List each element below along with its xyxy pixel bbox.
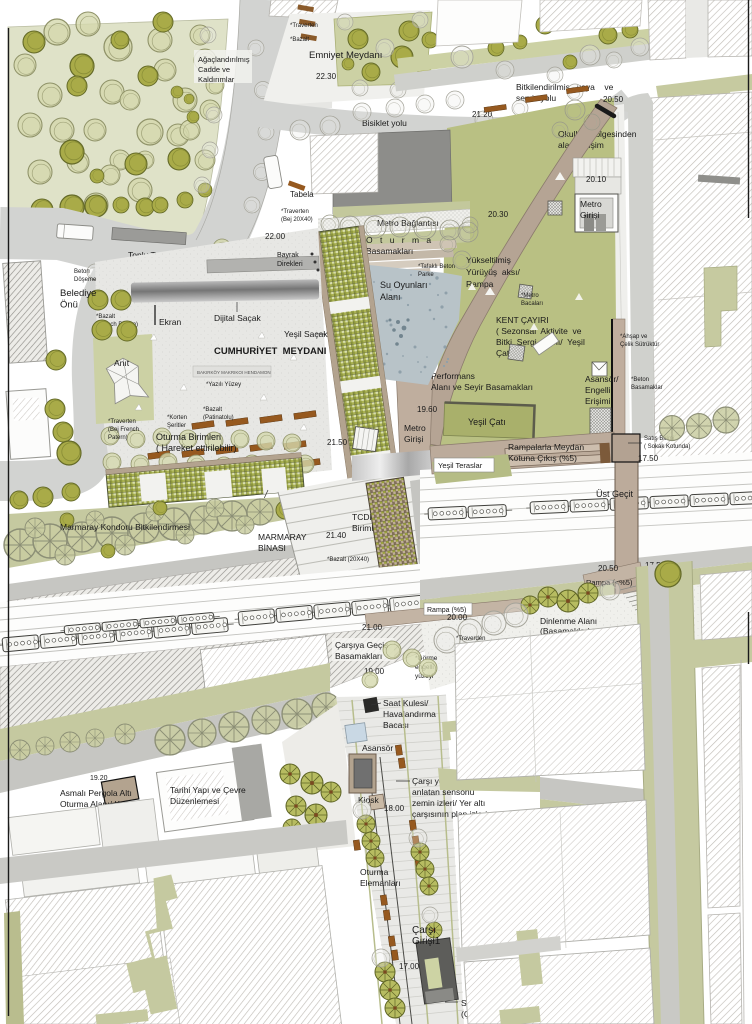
- svg-text:Üst Geçit: Üst Geçit: [596, 489, 634, 499]
- svg-text:Oturma: Oturma: [360, 867, 389, 877]
- svg-text:(Patinatolu): (Patinatolu): [203, 415, 234, 421]
- svg-text:20.50: 20.50: [598, 564, 619, 573]
- svg-text:*Bazalt: *Bazalt: [290, 37, 309, 43]
- svg-text:*Korten: *Korten: [167, 415, 187, 421]
- svg-text:Girişi1: Girişi1: [412, 936, 441, 947]
- svg-text:zemin izleri/ Yer altı: zemin izleri/ Yer altı: [412, 798, 485, 808]
- svg-text:Cadde ve: Cadde ve: [198, 65, 230, 74]
- svg-text:Dinlenme Alanı: Dinlenme Alanı: [540, 616, 597, 626]
- svg-text:Alanı ve Seyir Basamakları: Alanı ve Seyir Basamakları: [431, 382, 533, 392]
- svg-text:( Sezonsal Aktivite ve: ( Sezonsal Aktivite ve: [496, 326, 582, 336]
- svg-text:*Traverten: *Traverten: [108, 419, 136, 425]
- svg-text:Ekran: Ekran: [159, 317, 181, 327]
- svg-text:Havalandırma: Havalandırma: [383, 709, 436, 719]
- svg-text:(Bej French: (Bej French: [108, 427, 139, 433]
- svg-text:Şeritler: Şeritler: [167, 423, 186, 429]
- svg-text:Rampalarla Meydan: Rampalarla Meydan: [508, 442, 584, 452]
- svg-text:Performans: Performans: [431, 371, 475, 381]
- svg-text:20.30: 20.30: [488, 210, 509, 219]
- svg-text:KENT ÇAYIRI: KENT ÇAYIRI: [496, 315, 549, 325]
- svg-text:20.00: 20.00: [447, 613, 468, 622]
- svg-text:( Sokak Kotunda): ( Sokak Kotunda): [644, 444, 690, 450]
- svg-text:21.50: 21.50: [327, 438, 348, 447]
- svg-text:Düzenlemesi: Düzenlemesi: [170, 796, 219, 806]
- svg-text:22.00: 22.00: [265, 232, 286, 241]
- svg-text:Dijital Saçak: Dijital Saçak: [214, 313, 262, 323]
- svg-text:Çelik Sütrüktür: Çelik Sütrüktür: [620, 342, 659, 348]
- svg-text:Girişi: Girişi: [580, 210, 599, 220]
- svg-text:Erişimi: Erişimi: [585, 396, 611, 406]
- svg-text:*Traverten: *Traverten: [290, 23, 318, 29]
- svg-text:Emniyet Meydanı: Emniyet Meydanı: [309, 50, 382, 61]
- svg-text:MARMARAY: MARMARAY: [258, 532, 307, 542]
- svg-text:20.50: 20.50: [603, 95, 624, 104]
- svg-text:Metro: Metro: [404, 423, 426, 433]
- svg-text:*Traverten: *Traverten: [281, 209, 309, 215]
- svg-text:*Bazalt: *Bazalt: [203, 407, 222, 413]
- svg-text:Yeşil Çatı: Yeşil Çatı: [468, 417, 506, 427]
- svg-text:Asmalı Pergola Altı: Asmalı Pergola Altı: [60, 788, 132, 798]
- svg-text:Basamakları: Basamakları: [335, 651, 382, 661]
- svg-text:17.00: 17.00: [399, 962, 420, 971]
- svg-text:Asansör: Asansör: [362, 743, 393, 753]
- svg-text:BİNASI: BİNASI: [258, 543, 286, 553]
- svg-text:Önü: Önü: [60, 300, 78, 311]
- svg-text:Bayrak: Bayrak: [277, 252, 299, 259]
- svg-text:Bacaları: Bacaları: [521, 301, 543, 307]
- svg-text:Tarihi Yapı ve Çevre: Tarihi Yapı ve Çevre: [170, 785, 246, 795]
- svg-text:Metro: Metro: [580, 199, 602, 209]
- svg-text:Marmaray Kondoru Bitkilendirme: Marmaray Kondoru Bitkilendirmesi: [60, 522, 190, 532]
- svg-text:Kaldırımlar: Kaldırımlar: [198, 75, 235, 84]
- svg-text:22.30: 22.30: [316, 72, 337, 81]
- svg-text:O t u r m a: O t u r m a: [366, 235, 434, 245]
- svg-text:21.00: 21.00: [362, 623, 383, 632]
- svg-text:Tabela: Tabela: [290, 190, 314, 199]
- svg-text:*Beton: *Beton: [631, 377, 649, 383]
- svg-text:Bitkilendirilmiş yaya ve: Bitkilendirilmiş yaya ve: [516, 82, 614, 92]
- svg-text:*Ahşap ve: *Ahşap ve: [620, 334, 648, 340]
- svg-text:Saat Kulesi/: Saat Kulesi/: [383, 698, 429, 708]
- svg-text:*Bazalt (20X40): *Bazalt (20X40): [327, 557, 369, 563]
- svg-text:*Tafaklı Beton: *Tafaklı Beton: [418, 264, 455, 270]
- svg-text:CUMHURİYET MEYDANI: CUMHURİYET MEYDANI: [214, 346, 326, 357]
- svg-text:Çarşı: Çarşı: [412, 925, 436, 936]
- svg-text:Yürüyüş aksı/: Yürüyüş aksı/: [466, 267, 520, 277]
- svg-text:*Metro: *Metro: [521, 293, 539, 299]
- svg-text:Belediye: Belediye: [60, 288, 96, 299]
- svg-text:Elemanları: Elemanları: [360, 878, 401, 888]
- svg-text:20.10: 20.10: [586, 175, 607, 184]
- svg-text:*Yazılı Yüzey: *Yazılı Yüzey: [206, 382, 241, 388]
- svg-text:( Hareket ettirilebilir): ( Hareket ettirilebilir): [156, 443, 237, 453]
- svg-text:Direkleri: Direkleri: [277, 261, 303, 268]
- svg-text:Anıt: Anıt: [114, 358, 130, 368]
- svg-text:Basamakları: Basamakları: [366, 246, 413, 256]
- svg-text:Yeşil Teraslar: Yeşil Teraslar: [438, 461, 483, 470]
- svg-text:Girişi: Girişi: [404, 434, 423, 444]
- svg-text:BAKIRKÖY MAKRIKOI HENDAMON: BAKIRKÖY MAKRIKOI HENDAMON: [197, 369, 271, 375]
- svg-text:Patern): Patern): [108, 435, 128, 441]
- svg-text:Döşeme: Döşeme: [74, 277, 97, 283]
- svg-text:Parke: Parke: [418, 272, 434, 278]
- svg-text:Alanı: Alanı: [380, 292, 401, 302]
- svg-text:*Bazalt: *Bazalt: [96, 314, 115, 320]
- svg-text:Basamaklar: Basamaklar: [631, 385, 663, 391]
- svg-text:Bisiklet yolu: Bisiklet yolu: [362, 118, 407, 128]
- svg-text:18.00: 18.00: [384, 804, 405, 813]
- svg-text:Su Oyunları: Su Oyunları: [380, 280, 428, 290]
- svg-text:21.40: 21.40: [326, 531, 347, 540]
- svg-text:19.60: 19.60: [417, 405, 438, 414]
- svg-text:Oturma Birimleri: Oturma Birimleri: [156, 432, 221, 442]
- svg-text:Ağaçlandırılmış: Ağaçlandırılmış: [198, 55, 250, 64]
- svg-text:Asansör/: Asansör/: [585, 374, 619, 384]
- svg-text:17.50: 17.50: [638, 454, 659, 463]
- svg-text:Beton: Beton: [74, 269, 90, 275]
- svg-text:Çarşıya Geçiş: Çarşıya Geçiş: [335, 640, 388, 650]
- svg-text:Kotuna Çıkış (%5): Kotuna Çıkış (%5): [508, 453, 577, 463]
- svg-text:(Bej 20X40): (Bej 20X40): [281, 217, 313, 223]
- svg-text:Yükseltilmiş: Yükseltilmiş: [466, 255, 511, 265]
- svg-text:Engelli: Engelli: [585, 385, 611, 395]
